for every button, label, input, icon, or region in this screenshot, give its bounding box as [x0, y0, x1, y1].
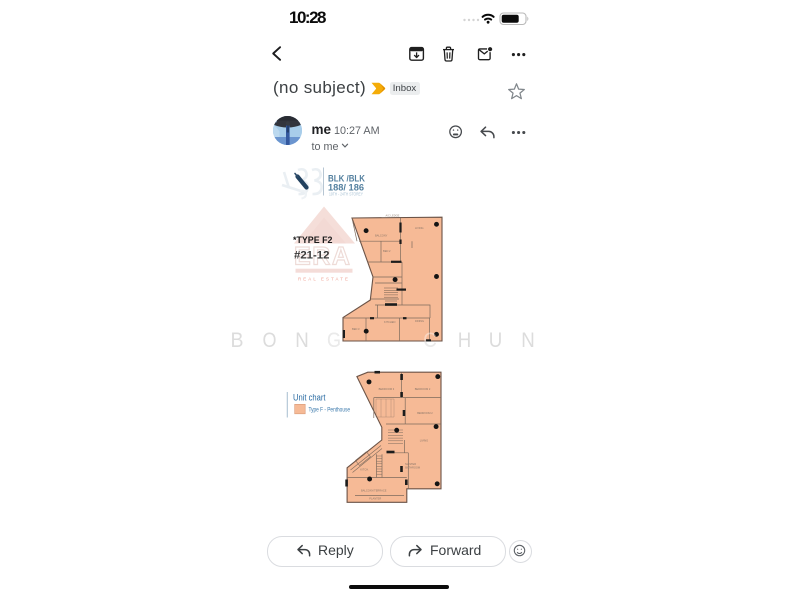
svg-text:PLANTER: PLANTER — [369, 497, 381, 501]
svg-text:O: O — [263, 329, 277, 352]
svg-text:BED 2: BED 2 — [383, 249, 391, 253]
svg-text:A/C LEDGE: A/C LEDGE — [386, 214, 400, 218]
svg-text:N: N — [521, 329, 535, 352]
svg-text:KITCH.: KITCH. — [360, 468, 369, 472]
svg-text:MASTER: MASTER — [405, 462, 416, 466]
svg-text:BEDROOM 2: BEDROOM 2 — [415, 387, 431, 391]
svg-text:REAL ESTATE: REAL ESTATE — [298, 276, 350, 281]
svg-text:BATHROOM: BATHROOM — [405, 466, 420, 470]
svg-text:KITCHEN: KITCHEN — [384, 320, 396, 324]
svg-text:G: G — [327, 329, 341, 352]
svg-text:N: N — [295, 329, 309, 352]
svg-text:Type F - Penthouse: Type F - Penthouse — [309, 408, 351, 414]
svg-text:Unit chart: Unit chart — [293, 393, 326, 403]
svg-text:BED 3: BED 3 — [352, 327, 360, 331]
svg-text:C: C — [423, 329, 437, 352]
svg-text:*TYPE F2: *TYPE F2 — [293, 235, 333, 246]
svg-text:B: B — [231, 329, 244, 352]
svg-text:H: H — [458, 329, 472, 352]
svg-text:LIVING: LIVING — [415, 226, 424, 230]
svg-text:BEDROOM 2: BEDROOM 2 — [417, 411, 433, 415]
svg-text:DINING: DINING — [415, 319, 424, 323]
svg-text:BEDROOM 3: BEDROOM 3 — [379, 387, 395, 391]
svg-text:U: U — [489, 329, 503, 352]
svg-text:BALCONY/TERRACE: BALCONY/TERRACE — [361, 489, 387, 493]
svg-text:LIVING: LIVING — [420, 439, 429, 443]
svg-text:BALCONY: BALCONY — [375, 234, 388, 238]
svg-text:#21-12: #21-12 — [294, 250, 330, 262]
svg-text:19TH - 24TH STOREY: 19TH - 24TH STOREY — [329, 192, 363, 197]
